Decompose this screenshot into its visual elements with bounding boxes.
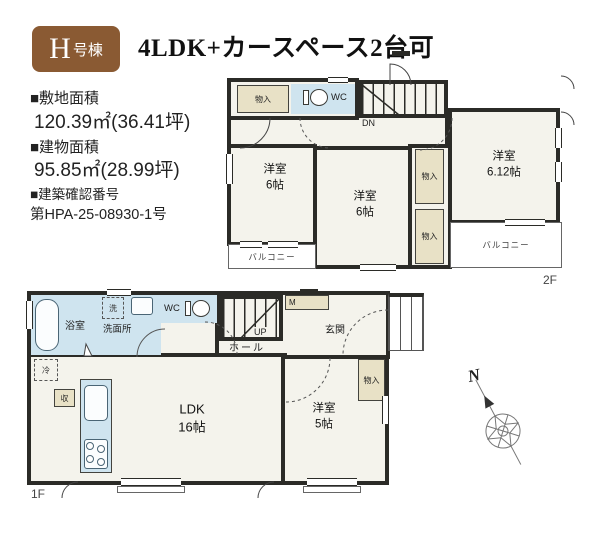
toilet-icon	[303, 90, 309, 105]
bathroom-label: 浴室	[65, 317, 85, 332]
window	[505, 219, 545, 226]
floor2-tag: 2F	[543, 273, 557, 287]
floor1-closet: 物入	[358, 359, 385, 401]
entrance-porch-steps	[388, 293, 424, 351]
hall-label: ホール	[229, 339, 265, 354]
floor1-bedroom-label: 洋室 5帖	[313, 401, 336, 432]
toilet-icon	[310, 89, 328, 106]
window	[360, 264, 396, 271]
ldk-label: LDK 16帖	[178, 400, 205, 435]
window	[555, 162, 562, 182]
compass-north-label: N	[466, 365, 482, 387]
floorplan-page: { "colors": { "wall": "#2b2b27", "room_f…	[0, 0, 600, 540]
window	[26, 301, 33, 329]
stove-burner	[97, 445, 105, 453]
confirmation-number-value: 第HPA-25-08930-1号	[30, 206, 240, 224]
toilet-icon	[192, 300, 210, 317]
building-area-label: ■建物面積	[30, 139, 240, 158]
wc-label: WC	[164, 303, 180, 314]
window	[555, 128, 562, 148]
window	[121, 478, 181, 486]
unit-badge-suffix: 号棟	[73, 39, 103, 60]
compass-rose-icon	[461, 372, 536, 473]
unit-badge-letter: H	[49, 34, 71, 64]
storage-box: 収	[54, 389, 75, 407]
floor2-plan: バルコニー バルコニー 物入 WC DN 物入 物入 洋室 6帖 洋室 6帖 洋…	[225, 60, 565, 295]
stairs-down	[358, 80, 448, 118]
up-label: UP	[253, 327, 268, 337]
fridge-space: 冷	[34, 359, 58, 381]
window	[328, 77, 348, 83]
floor2-closet-top: 物入	[237, 85, 289, 113]
window	[107, 289, 131, 296]
washroom-label: 洗面所	[103, 321, 132, 335]
floor2-wc-label: WC	[331, 92, 347, 103]
window	[240, 241, 262, 248]
floor2-bedroom-right-label: 洋室 6.12帖	[487, 149, 521, 180]
floor2-bedroom-left-label: 洋室 6帖	[264, 162, 287, 193]
window	[226, 154, 233, 184]
stove-burner	[97, 458, 105, 466]
floor2-bedroom-left	[227, 144, 317, 246]
window-sill	[117, 486, 185, 493]
entrance-label: 玄関	[325, 321, 345, 336]
land-area-value: 120.39㎡(36.41坪)	[34, 111, 240, 135]
meter-box: M	[285, 295, 329, 310]
page-title: 4LDK+カースペース2台可	[138, 28, 434, 64]
floor1-tag: 1F	[31, 487, 45, 501]
stove-burner	[86, 442, 94, 450]
floor2-closet-1: 物入	[415, 149, 444, 204]
stairs-up	[219, 295, 283, 341]
stove-burner	[86, 455, 94, 463]
window-sill	[303, 486, 361, 493]
floor2-bedroom-middle-label: 洋室 6帖	[354, 189, 377, 220]
sink-icon	[131, 297, 153, 315]
land-area-label: ■敷地面積	[30, 90, 240, 109]
balcony-right: バルコニー	[450, 222, 562, 268]
unit-badge: H 号棟	[32, 26, 120, 72]
window	[268, 241, 298, 248]
toilet-icon	[185, 301, 191, 316]
bathtub-icon	[35, 299, 59, 351]
floor2-closet-2: 物入	[415, 209, 444, 264]
confirmation-number-label: ■建築確認番号	[30, 187, 240, 204]
window	[307, 478, 357, 486]
floor1-plan: 浴室 洗 洗面所 WC UP ホール M 玄関 冷 収 LDK 16帖 物入 洋…	[25, 283, 435, 503]
window	[382, 396, 389, 424]
kitchen-sink-icon	[84, 385, 108, 421]
building-area-value: 95.85㎡(28.99坪)	[34, 159, 240, 183]
laundry-space: 洗	[102, 297, 124, 319]
property-info: ■敷地面積 120.39㎡(36.41坪) ■建物面積 95.85㎡(28.99…	[30, 86, 240, 224]
floor2-dn-label: DN	[362, 118, 375, 128]
floor1-ldk-room	[27, 353, 287, 485]
